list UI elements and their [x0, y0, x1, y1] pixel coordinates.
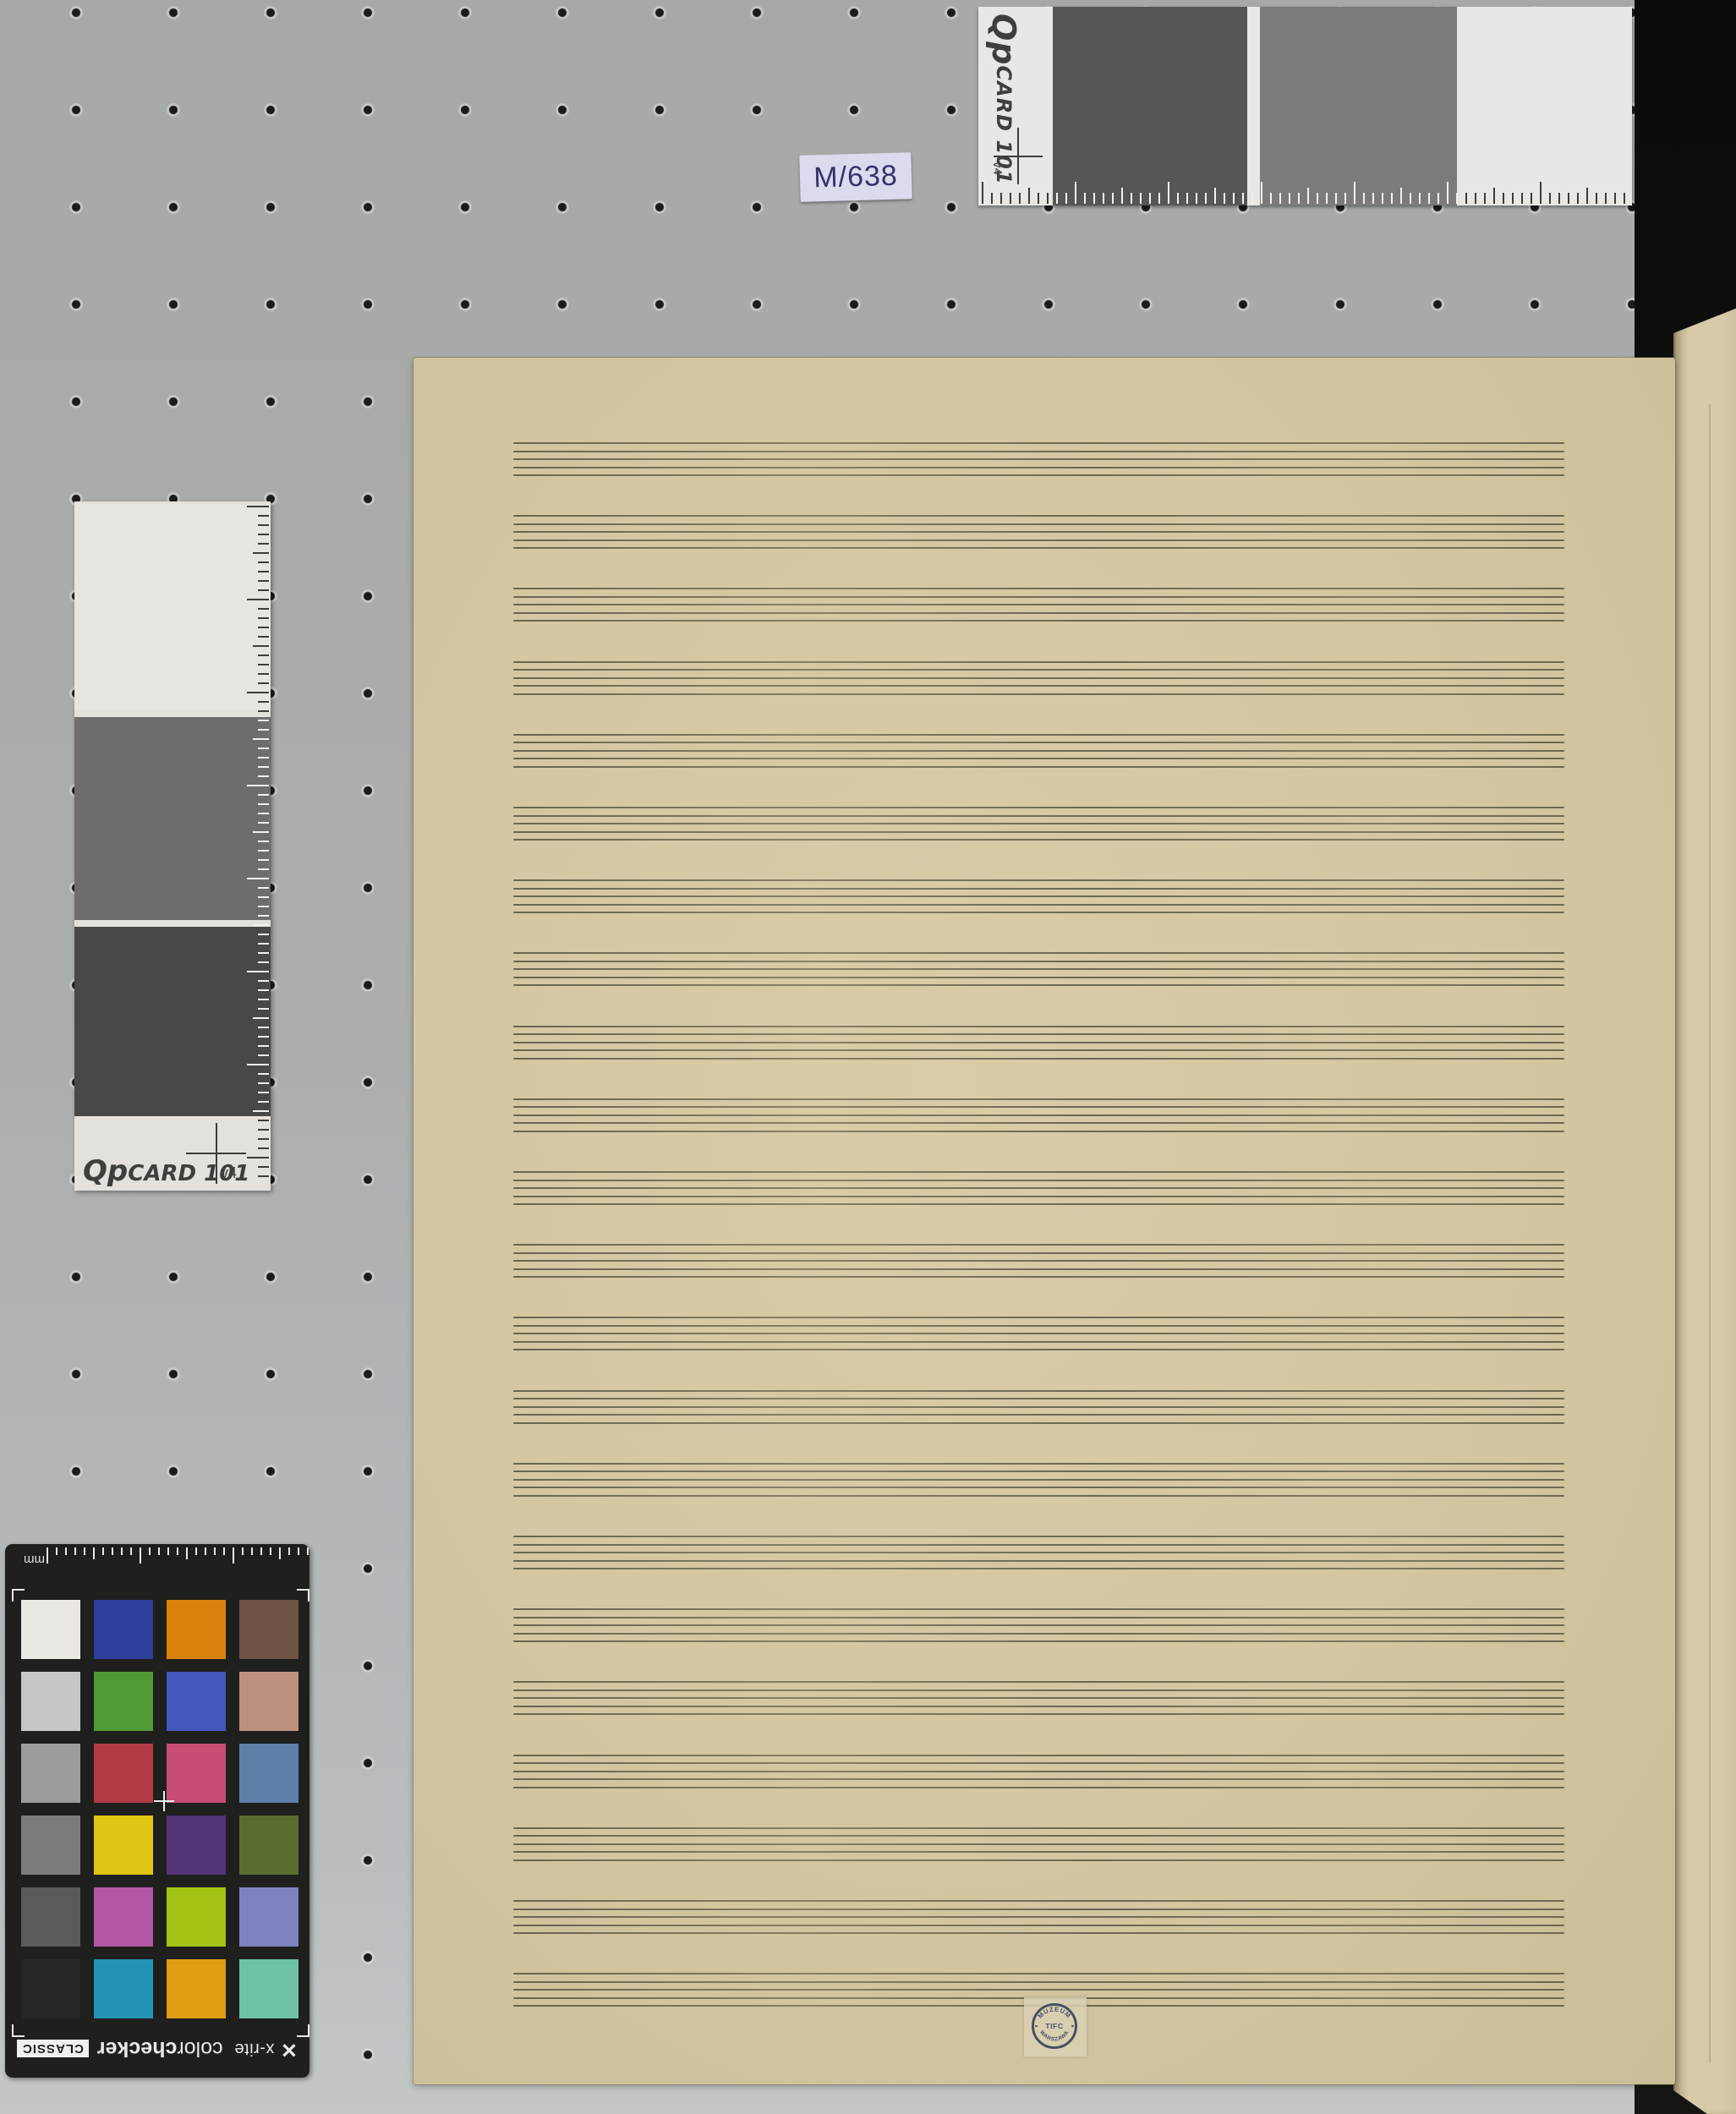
staff-line	[513, 1187, 1564, 1189]
color-patch	[239, 1672, 298, 1731]
staff-line	[513, 1042, 1564, 1043]
staff-line	[513, 669, 1564, 671]
staff-line	[513, 1058, 1564, 1060]
ruler-unit-label: mm	[24, 1553, 45, 1567]
ruler-tick	[1503, 193, 1504, 204]
book-page-stack-edge	[1673, 303, 1736, 2114]
staff-line	[513, 1909, 1564, 1910]
ruler-tick	[1131, 193, 1132, 204]
ruler-tick	[177, 1547, 178, 1555]
staff-line	[513, 661, 1564, 663]
ruler-tick	[47, 1547, 48, 1564]
ruler-tick	[1354, 182, 1355, 204]
ruler-tick	[307, 1547, 309, 1555]
title-light: color	[177, 2037, 222, 2062]
ruler-tick	[1038, 193, 1039, 204]
ruler-tick	[253, 1017, 269, 1019]
staff-line	[513, 742, 1564, 743]
staff-line	[513, 1925, 1564, 1926]
colorchecker-footer: ✕ x-rite colorchecker CLASSIC	[17, 2027, 298, 2071]
corner-bracket-icon	[297, 2024, 309, 2037]
ruler-tick	[258, 915, 269, 917]
ruler-tick	[258, 589, 269, 591]
ruler-tick	[247, 1064, 269, 1065]
ruler-tick	[258, 1092, 269, 1093]
ruler-tick	[1177, 193, 1179, 204]
ruler-tick	[298, 1547, 299, 1555]
staff-system	[513, 442, 1564, 2008]
staff-line	[513, 1398, 1564, 1399]
staff-line	[513, 1180, 1564, 1181]
photo-scene: MUZEUM WARSZAWA TIFC QpCARD 101 v4 M/638…	[0, 0, 1736, 2114]
color-patch	[21, 1887, 80, 1947]
staff-line	[513, 523, 1564, 525]
staff-line	[513, 952, 1564, 954]
ruler-tick	[1242, 193, 1244, 204]
color-patch	[239, 1887, 298, 1947]
ruler-tick	[253, 924, 269, 926]
staff-line	[513, 1827, 1564, 1829]
staff-line	[513, 758, 1564, 759]
qp-card-grayscale-left: QpCARD 101 v4	[74, 501, 271, 1191]
ruler-tick	[1521, 193, 1523, 204]
staff-line	[513, 1624, 1564, 1626]
staff-line	[513, 1333, 1564, 1334]
ruler-tick	[258, 729, 269, 731]
staff	[513, 1098, 1564, 1132]
ruler-tick	[258, 775, 269, 777]
staff-line	[513, 1706, 1564, 1707]
color-patch	[94, 1744, 153, 1803]
xrite-logo: ✕ x-rite	[234, 2039, 298, 2059]
staff-line	[513, 531, 1564, 533]
staff-line	[513, 458, 1564, 460]
ruler-tick	[258, 841, 269, 842]
staff-line	[513, 1276, 1564, 1278]
color-patch	[167, 1959, 226, 2018]
staff	[513, 1026, 1564, 1060]
ruler-tick	[258, 561, 269, 563]
staff-line	[513, 515, 1564, 517]
staff-line	[513, 1568, 1564, 1569]
staff-line	[513, 612, 1564, 614]
staff-line	[513, 1414, 1564, 1416]
staff-line	[513, 1260, 1564, 1262]
ruler-tick	[1298, 193, 1300, 204]
color-patch	[167, 1672, 226, 1731]
color-patch	[167, 1887, 226, 1947]
ruler-tick	[121, 1547, 123, 1555]
staff-line	[513, 1196, 1564, 1197]
ruler-tick	[258, 980, 269, 982]
ruler-tick	[1326, 193, 1328, 204]
colorchecker-card: mm ✕ x-rite colorchecker CLASSIC	[5, 1544, 309, 2078]
ruler-tick	[1261, 182, 1262, 204]
ruler-tick	[247, 878, 269, 879]
staff-line	[513, 547, 1564, 549]
staff-line	[513, 750, 1564, 752]
ruler-tick	[258, 859, 269, 861]
staff-line	[513, 693, 1564, 695]
staff-line	[513, 1851, 1564, 1853]
staff-line	[513, 596, 1564, 598]
ruler-tick	[258, 1036, 269, 1038]
staff-line	[513, 451, 1564, 452]
ruler-tick	[195, 1547, 197, 1555]
staff-line	[513, 1268, 1564, 1270]
staff-line	[513, 1755, 1564, 1756]
ruler-tick	[253, 1110, 269, 1112]
ruler-tick	[1344, 193, 1346, 204]
ruler-tick	[258, 1175, 269, 1177]
ruler-tick	[258, 608, 269, 610]
ruler-tick	[258, 868, 269, 870]
color-patch	[94, 1600, 153, 1659]
color-patch	[239, 1744, 298, 1803]
staff-line	[513, 807, 1564, 808]
staff-line	[513, 1479, 1564, 1481]
ruler-tick	[288, 1547, 290, 1555]
staff-line	[513, 1252, 1564, 1254]
ruler-tick	[1019, 193, 1021, 204]
ruler-tick	[258, 720, 269, 721]
ruler-tick	[149, 1547, 151, 1555]
staff-line	[513, 1049, 1564, 1051]
ruler-tick	[1391, 193, 1393, 204]
ruler-tick	[1363, 193, 1365, 204]
ruler-tick	[258, 813, 269, 814]
staff-line	[513, 677, 1564, 679]
staff-line	[513, 1487, 1564, 1488]
stamp-center-text: TIFC	[1045, 2022, 1064, 2030]
color-patch	[94, 1672, 153, 1731]
color-patch	[94, 1816, 153, 1875]
ruler-tick	[1596, 193, 1597, 204]
ruler-tick	[233, 1547, 234, 1564]
ruler-tick	[258, 627, 269, 628]
ruler-tick	[1317, 193, 1318, 204]
ruler-tick	[258, 1045, 269, 1047]
color-patch	[94, 1959, 153, 2018]
ruler-tick	[258, 1082, 269, 1084]
ruler-tick	[258, 1101, 269, 1103]
staff	[513, 1244, 1564, 1278]
ruler-tick	[1103, 193, 1104, 204]
ruler-tick	[258, 710, 269, 712]
staff-line	[513, 961, 1564, 962]
ruler-tick	[258, 1054, 269, 1056]
ruler-tick	[1512, 193, 1514, 204]
title-bold: checker	[97, 2037, 178, 2062]
staff-line	[513, 823, 1564, 824]
staff-line	[513, 1098, 1564, 1100]
ruler-tick	[258, 701, 269, 703]
ruler-tick	[1372, 193, 1374, 204]
shelf-mark-label: M/638	[799, 152, 912, 202]
ruler-tick	[260, 1547, 262, 1555]
ruler-tick	[1493, 188, 1495, 204]
ruler-tick	[56, 1547, 58, 1555]
ruler-tick	[1382, 193, 1383, 204]
staff-line	[513, 1981, 1564, 1983]
ruler-tick	[1456, 193, 1458, 204]
ruler-tick	[247, 971, 269, 972]
staff	[513, 879, 1564, 913]
staff-line	[513, 888, 1564, 890]
staff-line	[513, 1697, 1564, 1699]
stamp-bottom-text: WARSZAWA	[1038, 2029, 1071, 2042]
staff-line	[513, 1916, 1564, 1918]
staff-line	[513, 1713, 1564, 1715]
staff-line	[513, 1131, 1564, 1132]
ruler-tick	[258, 1147, 269, 1149]
ruler-tick	[279, 1547, 281, 1559]
ruler-tick	[247, 785, 269, 786]
ruler-tick	[247, 692, 269, 693]
ruler-tick	[258, 682, 269, 684]
ruler-tick	[1410, 193, 1411, 204]
ruler-tick	[1010, 193, 1011, 204]
staff-line	[513, 1787, 1564, 1788]
ruler-tick	[65, 1547, 67, 1555]
ruler-tick	[258, 664, 269, 665]
staff	[513, 588, 1564, 622]
staff-line	[513, 1859, 1564, 1861]
ruler-tick	[214, 1547, 216, 1555]
staff	[513, 515, 1564, 549]
ruler-tick	[112, 1547, 113, 1555]
staff-line	[513, 1341, 1564, 1343]
staff	[513, 1900, 1564, 1934]
ruler-tick	[140, 1547, 141, 1564]
ruler-tick	[253, 738, 269, 740]
staff-line	[513, 1843, 1564, 1845]
ruler-tick	[258, 989, 269, 991]
ruler-tick	[258, 803, 269, 805]
ruler-tick	[158, 1547, 160, 1555]
ruler-tick	[253, 552, 269, 554]
ruler-tick	[258, 580, 269, 582]
ruler-tick	[991, 193, 993, 204]
staff-line	[513, 1470, 1564, 1472]
ruler-tick	[1075, 182, 1076, 204]
ruler-tick	[258, 515, 269, 517]
staff	[513, 661, 1564, 695]
staff	[513, 1463, 1564, 1497]
color-patch	[239, 1816, 298, 1875]
staff-line	[513, 474, 1564, 476]
ruler-tick	[1307, 188, 1309, 204]
colorchecker-title: colorchecker CLASSIC	[17, 2037, 223, 2062]
staff-line	[513, 839, 1564, 841]
staff-line	[513, 815, 1564, 817]
staff-line	[513, 1900, 1564, 1902]
ruler-tick	[258, 1073, 269, 1075]
staff-line	[513, 1932, 1564, 1934]
ruler-tick	[258, 961, 269, 963]
staff-line	[513, 1325, 1564, 1327]
ruler-tick	[1428, 193, 1430, 204]
ruler-tick	[1549, 193, 1551, 204]
staff-line	[513, 1544, 1564, 1546]
ruler-tick	[258, 822, 269, 824]
staff-line	[513, 1536, 1564, 1537]
ruler-tick	[258, 617, 269, 619]
ruler-tick	[258, 636, 269, 638]
ruler-tick	[258, 1166, 269, 1168]
staff-line	[513, 1973, 1564, 1974]
ruler-tick	[1140, 193, 1142, 204]
staff-line	[513, 685, 1564, 687]
color-patch	[21, 1744, 80, 1803]
ruler-tick	[1624, 193, 1625, 204]
ruler-tick	[258, 654, 269, 656]
ruler-tick	[253, 645, 269, 647]
staff	[513, 442, 1564, 476]
staff-line	[513, 1463, 1564, 1465]
ruler-tick	[251, 1547, 253, 1555]
color-patch	[239, 1959, 298, 2018]
staff	[513, 1755, 1564, 1788]
ruler-tick	[258, 748, 269, 749]
ruler-tick	[1279, 193, 1281, 204]
ruler-tick	[258, 534, 269, 535]
manuscript-page: MUZEUM WARSZAWA TIFC	[413, 358, 1675, 2084]
staff-line	[513, 1560, 1564, 1562]
museum-stamp: MUZEUM WARSZAWA TIFC	[1030, 2002, 1079, 2051]
staff-line	[513, 895, 1564, 897]
ruler-tick	[253, 831, 269, 833]
ruler-tick	[1400, 188, 1402, 204]
staff-line	[513, 1608, 1564, 1610]
ruler-tick	[1251, 193, 1253, 204]
ruler-tick	[1540, 182, 1542, 204]
ruler-tick	[258, 934, 269, 935]
ruler-tick	[258, 794, 269, 796]
staff-line	[513, 1033, 1564, 1035]
staff-line	[513, 467, 1564, 468]
staff-line	[513, 588, 1564, 589]
staff-line	[513, 1495, 1564, 1497]
ruler-tick	[223, 1547, 225, 1555]
staff-line	[513, 766, 1564, 768]
ruler-tick	[1558, 193, 1560, 204]
ruler-tick	[1205, 193, 1207, 204]
staff-line	[513, 442, 1564, 444]
ruler-tick	[1056, 193, 1058, 204]
ruler-tick	[247, 506, 269, 507]
staff	[513, 1608, 1564, 1642]
staff-line	[513, 1989, 1564, 1991]
ruler-tick	[1270, 193, 1272, 204]
color-patch	[21, 1959, 80, 2018]
staff	[513, 952, 1564, 986]
ruler-tick	[1158, 193, 1160, 204]
ruler-tick	[270, 1547, 271, 1555]
ruler-tick	[1186, 193, 1188, 204]
ruler-tick	[1447, 182, 1448, 204]
staff-line	[513, 1422, 1564, 1424]
staff-line	[513, 977, 1564, 978]
staff-line	[513, 904, 1564, 906]
ruler-tick	[258, 673, 269, 675]
ruler-tick	[1531, 193, 1532, 204]
ruler-tick	[102, 1547, 104, 1555]
color-patch	[21, 1672, 80, 1731]
color-patch	[21, 1600, 80, 1659]
staff-line	[513, 912, 1564, 913]
staff-line	[513, 1552, 1564, 1553]
shelf-mark-text: M/638	[813, 160, 899, 195]
staff	[513, 1827, 1564, 1861]
ruler-tick	[1475, 193, 1476, 204]
ruler-tick	[1484, 193, 1486, 204]
staff	[513, 1681, 1564, 1715]
svg-text:WARSZAWA: WARSZAWA	[1038, 2029, 1071, 2042]
ruler-tick	[84, 1547, 85, 1555]
ruler-tick	[1028, 188, 1030, 204]
ruler-tick	[258, 850, 269, 852]
ruler-tick	[1586, 188, 1588, 204]
staff-line	[513, 1690, 1564, 1691]
staff-line	[513, 1122, 1564, 1124]
ruler-tick	[258, 896, 269, 898]
ruler-tick	[1233, 193, 1235, 204]
staff-line	[513, 604, 1564, 605]
ruler-tick	[1065, 193, 1067, 204]
color-patch	[167, 1744, 226, 1803]
staff-line	[513, 620, 1564, 622]
ruler-tick	[1000, 193, 1002, 204]
ruler-tick	[74, 1547, 76, 1555]
ruler-tick	[1121, 188, 1123, 204]
staff-line	[513, 734, 1564, 736]
xrite-x-icon: ✕	[280, 2039, 298, 2059]
staff-line	[513, 1349, 1564, 1350]
ruler-tick	[258, 757, 269, 759]
ruler-tick	[1084, 193, 1086, 204]
ruler-tick	[1419, 193, 1421, 204]
staff	[513, 1536, 1564, 1569]
color-patch	[167, 1816, 226, 1875]
ruler-tick	[93, 1547, 95, 1559]
staff-line	[513, 879, 1564, 881]
color-patch	[21, 1816, 80, 1875]
staff	[513, 1171, 1564, 1205]
staff-line	[513, 1171, 1564, 1173]
staff-line	[513, 1762, 1564, 1764]
ruler-tick	[1112, 193, 1114, 204]
ruler-tick	[205, 1547, 206, 1555]
staff-line	[513, 1771, 1564, 1772]
ruler-tick	[982, 182, 983, 204]
staff-line	[513, 1106, 1564, 1108]
staff-line	[513, 1640, 1564, 1642]
ruler-tick	[1047, 193, 1049, 204]
ruler-tick	[258, 571, 269, 572]
staff	[513, 734, 1564, 768]
corner-bracket-icon	[297, 1589, 309, 1602]
ruler-tick	[247, 1157, 269, 1158]
staff-line	[513, 1633, 1564, 1635]
ruler-tick	[1196, 193, 1197, 204]
staff-line	[513, 831, 1564, 833]
staff-line	[513, 1026, 1564, 1027]
ruler-tick	[258, 999, 269, 1000]
ruler-tick	[1614, 193, 1616, 204]
staff-line	[513, 1835, 1564, 1837]
ruler-ticks	[74, 501, 271, 1191]
